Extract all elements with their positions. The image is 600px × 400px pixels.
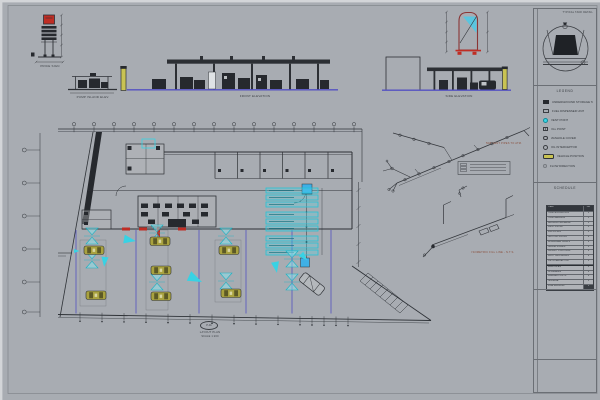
car [86,291,106,300]
legend-item: VENT POINT [543,116,593,124]
totem-elevation [120,66,126,91]
flow-arrow [101,257,109,267]
grid-bubble [332,123,335,126]
car [84,246,104,255]
legend-item: UNDERGROUND STORAGE TANK [543,98,593,106]
grid-bubble [352,123,355,126]
plan-title-bubble: P-01 [200,321,218,330]
legend-item: OIL INTERCEPTOR [543,143,593,151]
grid-bubble [272,123,275,126]
interceptor-symbol [543,145,548,150]
main-elevation [127,56,338,90]
schedule-panel: SCHEDULE ITEM NO TANK EXCAVATION1TANK BE… [534,182,596,289]
iso-vent-piping [383,128,530,198]
iso-fill-piping [423,196,514,258]
boundary-dot [167,322,169,324]
main-elevation-caption: FRONT ELEVATION [232,95,278,98]
legend-panel: LEGEND UNDERGROUND STORAGE TANK FUEL DIS… [534,85,596,182]
signature-panel [534,359,596,392]
boundary-dot [123,321,125,323]
grid-bubble [22,310,26,314]
price-sign-detail [31,14,64,63]
grid-bubble [232,123,235,126]
boundary-dot [277,324,279,326]
legend-item: FUEL DISPENSER UNIT [543,107,593,115]
flow-arrow [271,261,281,273]
detail-caption: TYPICAL TANK DETAIL [549,12,593,15]
drawing-sheet: PRICE SIGN PUMP ISLAND ELEV. FRONT ELEVA… [0,0,600,400]
legend-item: VEHICLE POSITION [543,152,593,160]
car [151,292,171,301]
car [150,237,170,246]
boundary-dot [335,325,337,327]
car [151,266,171,275]
right-elevation-caption: SIDE ELEVATION [436,95,482,98]
boundary-dot [145,321,147,323]
boundary-dot [233,323,235,325]
grid-bubble [312,123,315,126]
dispenser-symbol [543,109,549,113]
flow-arrow [74,249,80,253]
car [219,246,239,255]
iso2-caption: ISOMETRIC FILL LINE - N.T.S. [460,251,526,254]
grid-bubble [292,123,295,126]
iso1-annotation: 50Ø VENT PIPES TO ATM. [486,143,532,146]
car [221,289,241,298]
revision-panel [534,289,596,359]
price-sign-caption: PRICE SIGN [28,65,72,68]
stairs [360,273,408,313]
grid-bubble [22,148,26,152]
plan-title: LAYOUT PLAN [184,331,236,334]
boundary-dot [323,324,325,326]
grid-bubble [132,123,135,126]
grid-bubble [92,123,95,126]
boundary-dot [255,323,257,325]
manhole-symbol [543,136,548,141]
left-elevation-caption: PUMP ISLAND ELEV. [70,96,116,99]
grid-bubble [192,123,195,126]
left-elevation [68,73,117,93]
cad-linework [0,0,600,400]
tank-symbol [543,100,549,104]
boundary-dot [79,320,81,322]
grid-bubble [22,247,26,251]
boundary-dot [347,325,349,327]
boundary-dot [311,324,313,326]
boundary-dot [189,322,191,324]
plan-scale: SCALE 1:200 [184,336,236,339]
flow-symbol [543,164,547,168]
pylon-section-detail [445,11,489,55]
schedule-table: ITEM NO TANK EXCAVATION1TANK BEDDING1BAC… [546,205,594,291]
vehicle-symbol [543,154,554,159]
grid-bubble [212,123,215,126]
detail-panel: TYPICAL TANK DETAIL [534,9,596,85]
flow-arrow [123,235,136,246]
grid-bubble [112,123,115,126]
boundary-dot [101,321,103,323]
fill-symbol [543,127,548,132]
legend-item: MANHOLE COVER [543,134,593,142]
grid-bubble [152,123,155,126]
vent-symbol [543,118,548,123]
grid-bubble [22,214,26,218]
flow-arrow [187,271,204,286]
legend-item: FILL POINT [543,125,593,133]
title-block: TYPICAL TANK DETAIL LEGEND UNDERGROUND S… [533,8,597,393]
legend-title: LEGEND [534,89,596,93]
car-gray [298,272,325,296]
boundary-dot [299,324,301,326]
right-elevation [382,57,511,90]
grid-bubble [252,123,255,126]
schedule-title: SCHEDULE [534,186,596,190]
grid-bubble [172,123,175,126]
legend-item: FLOW DIRECTION [543,162,593,170]
grid-bubble [72,123,75,126]
grid-bubble [22,181,26,185]
grid-bubble [22,280,26,284]
